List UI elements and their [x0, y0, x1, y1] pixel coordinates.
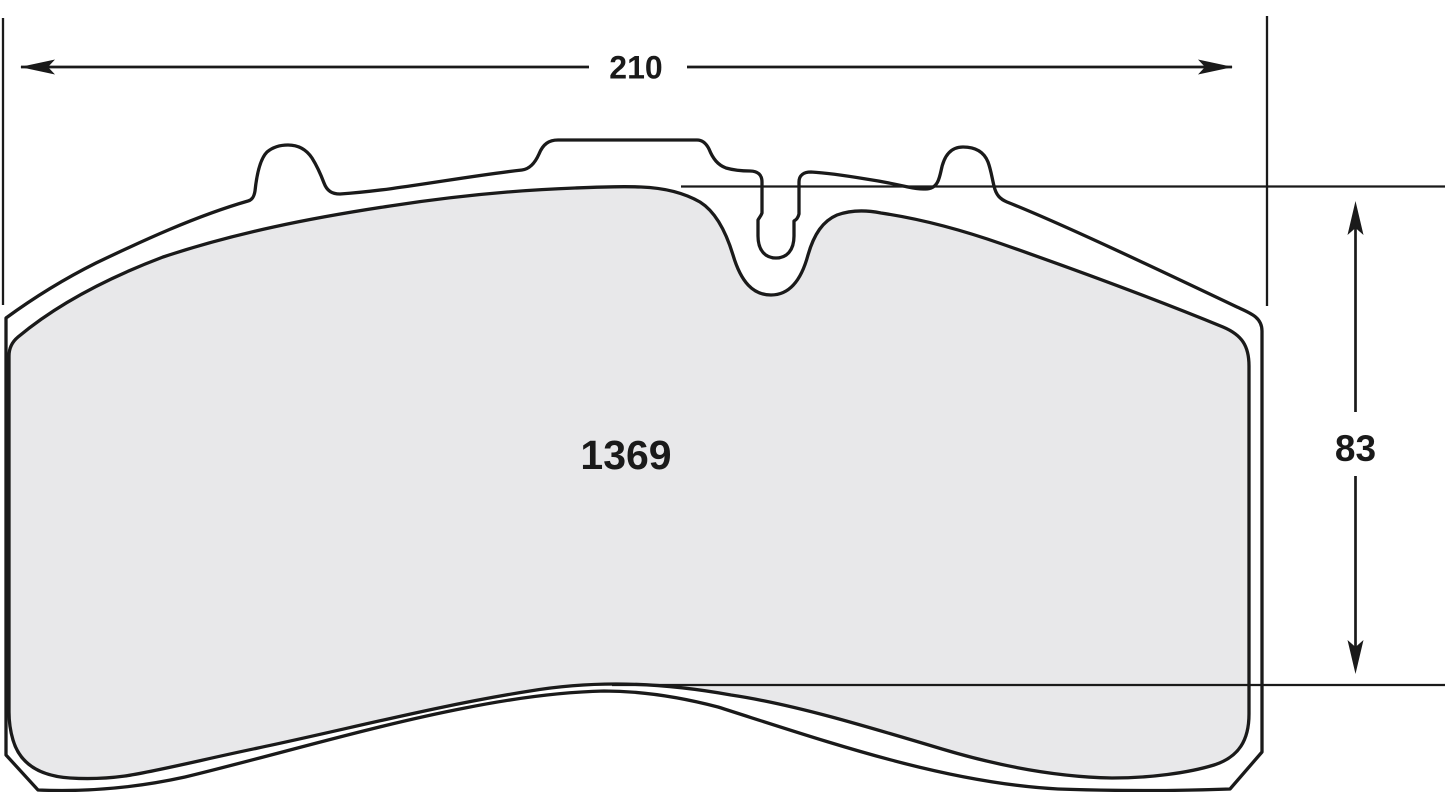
drawing-canvas: 210 83 1369	[0, 0, 1445, 792]
width-dimension-label: 210	[609, 50, 662, 86]
height-dimension-label: 83	[1335, 428, 1376, 469]
brake-pad-technical-drawing: 210 83 1369	[0, 0, 1445, 792]
part-number-label: 1369	[580, 432, 671, 478]
